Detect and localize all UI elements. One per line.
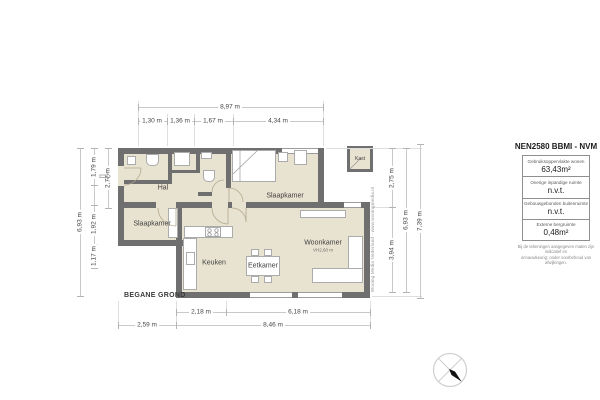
legend-title: NEN2580 BBMI - NVM — [514, 142, 598, 151]
window-living-2 — [298, 292, 342, 298]
floorplan-page: Hal Slaapkamer Slaapkamer Keuken Eetkame… — [0, 0, 600, 400]
sofa-seat — [312, 268, 363, 283]
dining-chair — [251, 276, 259, 283]
dining-chair — [264, 276, 272, 283]
toilet-bathroom — [146, 154, 159, 166]
legend-row: Gebouwgebonden buitenruimte n.v.t. — [523, 199, 589, 220]
room-label-hal: Hal — [158, 185, 169, 192]
dim-label: 6,93 m — [403, 208, 410, 232]
toilet-wc — [203, 170, 215, 182]
legend-row-label: Overige inpandige ruimte — [530, 180, 581, 185]
legend-box: Gebruiksoppervlakte wonen 63,43m² Overig… — [522, 155, 590, 241]
entrance-arrow-icon: ⇨ — [99, 169, 112, 184]
dim-label: 1,79 m — [91, 155, 98, 179]
legend-disclaimer-line: onnauwkeurig; onder voorbehoud van afwij… — [510, 255, 600, 266]
dim-label: 1,92 m — [91, 212, 98, 236]
window-living-1 — [250, 292, 292, 298]
extension-line — [372, 296, 422, 297]
legend-row-value: n.v.t. — [548, 186, 565, 195]
dim-label: 1,30 m — [140, 118, 164, 125]
kitchen-sink — [186, 252, 195, 265]
legend-row: Externe bergruimte 0,48m² — [523, 220, 589, 240]
legend-row: Gebruiksoppervlakte wonen 63,43m² — [523, 156, 589, 177]
room-label-keuken: Keuken — [202, 260, 226, 267]
dim-label: 2,75 m — [389, 166, 396, 190]
dim-label: 6,93 m — [77, 210, 84, 234]
dim-label: 1,36 m — [168, 118, 192, 125]
dim-label: 3,94 m — [389, 238, 396, 262]
sink-bathroom — [127, 156, 136, 165]
wall-closet-bottom — [168, 170, 200, 173]
room-label-kast: Kast — [355, 156, 365, 162]
watermark-text: Woning Media Nederland - www.woningmedia… — [370, 196, 375, 292]
room-label-slaapkamer-top: Slaapkamer — [266, 193, 303, 200]
dim-label: 2,18 m — [189, 309, 213, 316]
door-opening-entrance — [118, 166, 124, 186]
sideboard — [300, 210, 346, 218]
dim-label: 7,39 m — [417, 209, 424, 233]
dim-label: 1,17 m — [91, 244, 98, 268]
door-opening-hall-living — [212, 202, 228, 208]
dresser — [294, 150, 307, 165]
dim-label: 1,67 m — [201, 118, 225, 125]
legend-row-value: 0,48m² — [544, 228, 569, 237]
wall-upper-right — [318, 148, 324, 208]
room-label-woonkamer: Woonkamer — [304, 240, 342, 247]
wall-bath-bottom — [122, 180, 170, 184]
dim-label: 2,59 m — [135, 322, 159, 329]
dim-label: 6,18 m — [286, 309, 310, 316]
wall-wc-bottom — [198, 192, 212, 196]
legend-disclaimer-line: Bij de tekeningen aangegeven maten zijn … — [510, 244, 600, 255]
legend-row-label: Gebouwgebonden buitenruimte — [524, 201, 588, 206]
legend-row-label: Externe bergruimte — [536, 222, 575, 227]
sink-wc — [201, 152, 212, 159]
nightstand — [278, 152, 288, 162]
compass-icon — [434, 354, 467, 387]
floor-title: BEGANE GROND — [124, 292, 186, 299]
dim-label: 8,46 m — [261, 322, 285, 329]
wall-closet-right — [196, 148, 200, 172]
door-balcony — [344, 202, 361, 208]
legend-row: Overige inpandige ruimte n.v.t. — [523, 177, 589, 198]
wall-left — [118, 148, 124, 246]
room-label-woonkamer-height: VH2,60 m — [313, 248, 333, 253]
dim-label: 8,97 m — [218, 104, 242, 111]
room-label-eetkamer: Eetkamer — [248, 263, 278, 270]
legend-row-value: n.v.t. — [548, 207, 565, 216]
room-label-slaapkamer-left: Slaapkamer — [133, 221, 170, 228]
kitchen-stove — [205, 227, 221, 237]
washer — [174, 152, 190, 166]
wall-bath-right — [168, 148, 172, 184]
legend-row-value: 63,43m² — [541, 165, 570, 174]
legend-row-label: Gebruiksoppervlakte wonen — [528, 159, 585, 164]
legend-disclaimer: Bij de tekeningen aangegeven maten zijn … — [510, 244, 600, 266]
wall-hall-bedroom-divider — [226, 148, 231, 188]
dim-label: 4,34 m — [266, 118, 290, 125]
bed — [232, 150, 276, 182]
dim-line-top-segments — [138, 121, 323, 122]
dining-chair — [251, 249, 259, 256]
door-opening-bedroom-living — [232, 202, 246, 208]
dining-chair — [264, 249, 272, 256]
